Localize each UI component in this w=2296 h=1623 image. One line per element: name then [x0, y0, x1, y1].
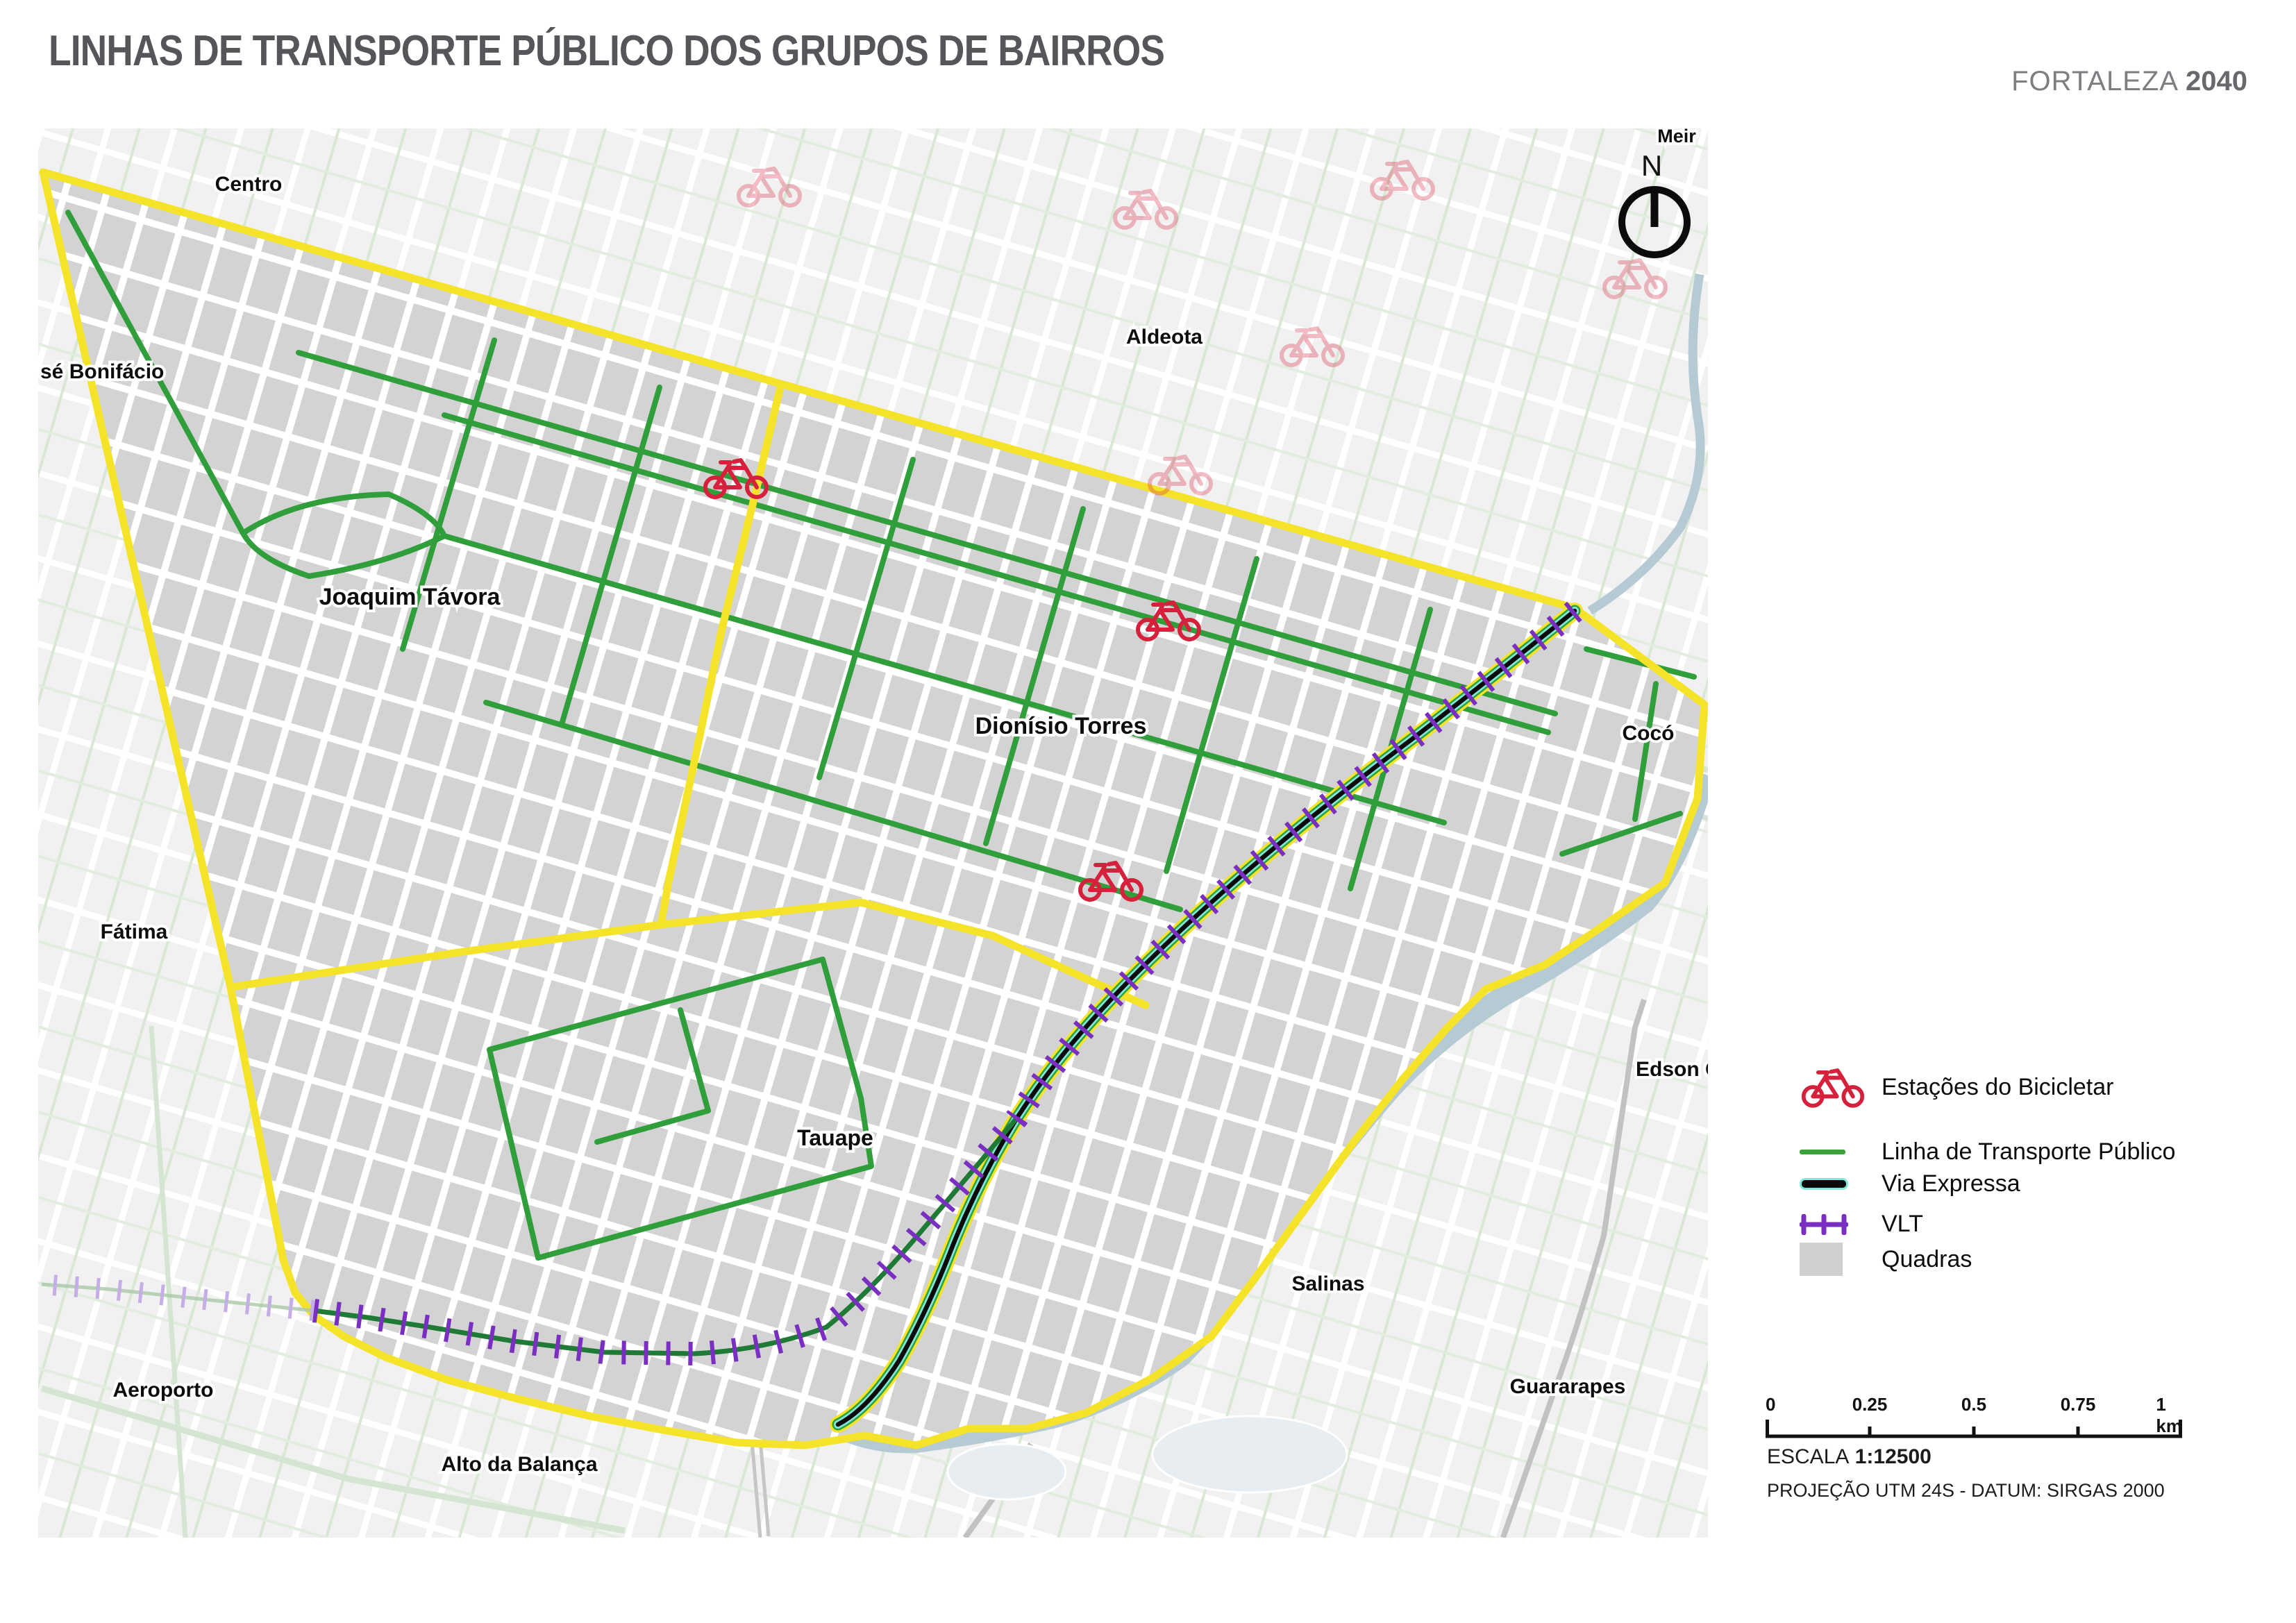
legend-item-vlt: VLT [1800, 1211, 1923, 1238]
page-title: LINHAS DE TRANSPORTE PÚBLICO DOS GRUPOS … [49, 26, 1164, 76]
legend-label: Quadras [1882, 1246, 1972, 1273]
brand-name: FORTALEZA [2011, 66, 2179, 96]
vlt-legend-swatch [1800, 1214, 1869, 1235]
scalebar-bar [1766, 1418, 2182, 1438]
legend-label: Via Expressa [1882, 1170, 2020, 1197]
legend-item-bike-station: Estações do Bicicletar [1800, 1065, 2114, 1109]
label-jose-bonifacio: sé Bonifácio [40, 360, 164, 383]
transport-line-legend-swatch [1800, 1150, 1869, 1154]
legend-label: Linha de Transporte Público [1882, 1138, 2175, 1166]
scale-note: ESCALA 1:12500 [1767, 1445, 1932, 1469]
quadras-legend-swatch [1800, 1243, 1869, 1276]
scalebar-labels: 0 0.25 0.5 0.75 1 km [1766, 1394, 2182, 1418]
escala-value: 1:12500 [1855, 1445, 1932, 1468]
scalebar-tick-label: 1 km [2156, 1394, 2182, 1437]
legend-label: Estações do Bicicletar [1882, 1074, 2114, 1101]
label-meireles: Meir [1657, 128, 1696, 146]
scalebar-tick-label: 0 [1766, 1394, 1775, 1415]
label-tauape: Tauape [797, 1125, 873, 1150]
scalebar-tick-label: 0.5 [1961, 1394, 1986, 1415]
map-canvas: Centro Meir sé Bonifácio Aldeota Joaquim… [38, 128, 1708, 1538]
legend-item-transport-line: Linha de Transporte Público [1800, 1138, 2175, 1166]
label-coco: Cocó [1623, 722, 1675, 745]
brand-year: 2040 [2186, 66, 2247, 96]
label-joaquim-tavora: Joaquim Távora [319, 584, 501, 610]
label-centro: Centro [215, 173, 283, 196]
brand-logo: FORTALEZA2040 [2011, 66, 2247, 97]
label-aeroporto: Aeroporto [113, 1379, 214, 1402]
lagoon-small [948, 1444, 1066, 1499]
legend-label: VLT [1882, 1211, 1923, 1238]
legend-item-via-expressa: Via Expressa [1800, 1170, 2020, 1197]
label-fatima: Fátima [101, 920, 168, 943]
scalebar-tick-label: 0.75 [2061, 1394, 2096, 1415]
scalebar: 0 0.25 0.5 0.75 1 km [1766, 1394, 2182, 1442]
escala-label: ESCALA [1767, 1445, 1849, 1468]
north-arrow-label: N [1641, 149, 1662, 182]
label-aldeota: Aldeota [1126, 326, 1203, 348]
lagoon [1153, 1416, 1347, 1492]
label-dionisio-torres: Dionísio Torres [975, 713, 1147, 739]
page: { "header": { "title": "LINHAS DE TRANSP… [0, 0, 2296, 1623]
bike-station-legend-icon [1800, 1065, 1869, 1109]
label-edson-queiroz: Edson Quei [1636, 1058, 1708, 1081]
map-svg: Centro Meir sé Bonifácio Aldeota Joaquim… [38, 128, 1708, 1538]
label-alto-da-balanca: Alto da Balança [441, 1453, 597, 1476]
projection-note: PROJEÇÃO UTM 24S - DATUM: SIRGAS 2000 [1767, 1480, 2165, 1502]
label-guararapes: Guararapes [1510, 1375, 1626, 1398]
legend-item-quadras: Quadras [1800, 1243, 1972, 1276]
via-expressa-legend-swatch [1800, 1178, 1869, 1190]
label-salinas: Salinas [1291, 1272, 1364, 1295]
scalebar-tick-label: 0.25 [1852, 1394, 1888, 1415]
